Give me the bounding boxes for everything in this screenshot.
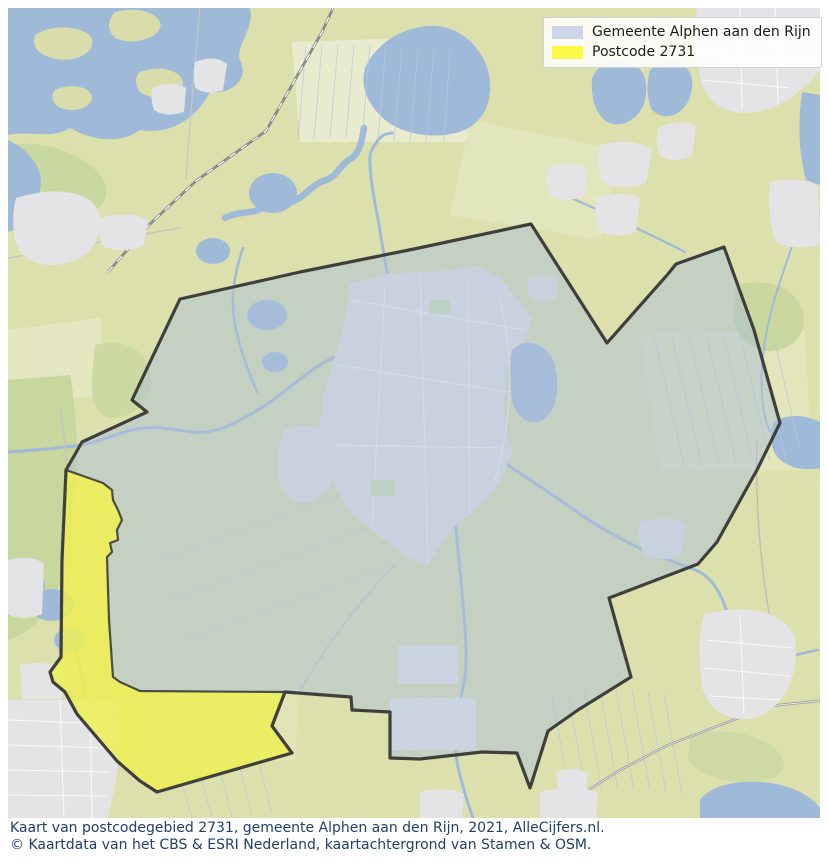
legend-label-postcode: Postcode 2731 [592, 44, 695, 60]
map-canvas [0, 0, 828, 861]
caption: Kaart van postcodegebied 2731, gemeente … [10, 820, 605, 854]
legend-row-gemeente: Gemeente Alphen aan den Rijn [552, 24, 811, 40]
caption-line-2: © Kaartdata van het CBS & ESRI Nederland… [10, 837, 605, 854]
postcode-swatch-icon [552, 46, 583, 59]
map-frame [8, 8, 827, 818]
screenshot-root: Gemeente Alphen aan den Rijn Postcode 27… [0, 0, 828, 861]
legend-label-gemeente: Gemeente Alphen aan den Rijn [592, 24, 811, 40]
legend: Gemeente Alphen aan den Rijn Postcode 27… [543, 17, 822, 68]
legend-row-postcode: Postcode 2731 [552, 44, 811, 60]
gemeente-swatch-icon [552, 26, 583, 39]
caption-line-1: Kaart van postcodegebied 2731, gemeente … [10, 820, 605, 837]
